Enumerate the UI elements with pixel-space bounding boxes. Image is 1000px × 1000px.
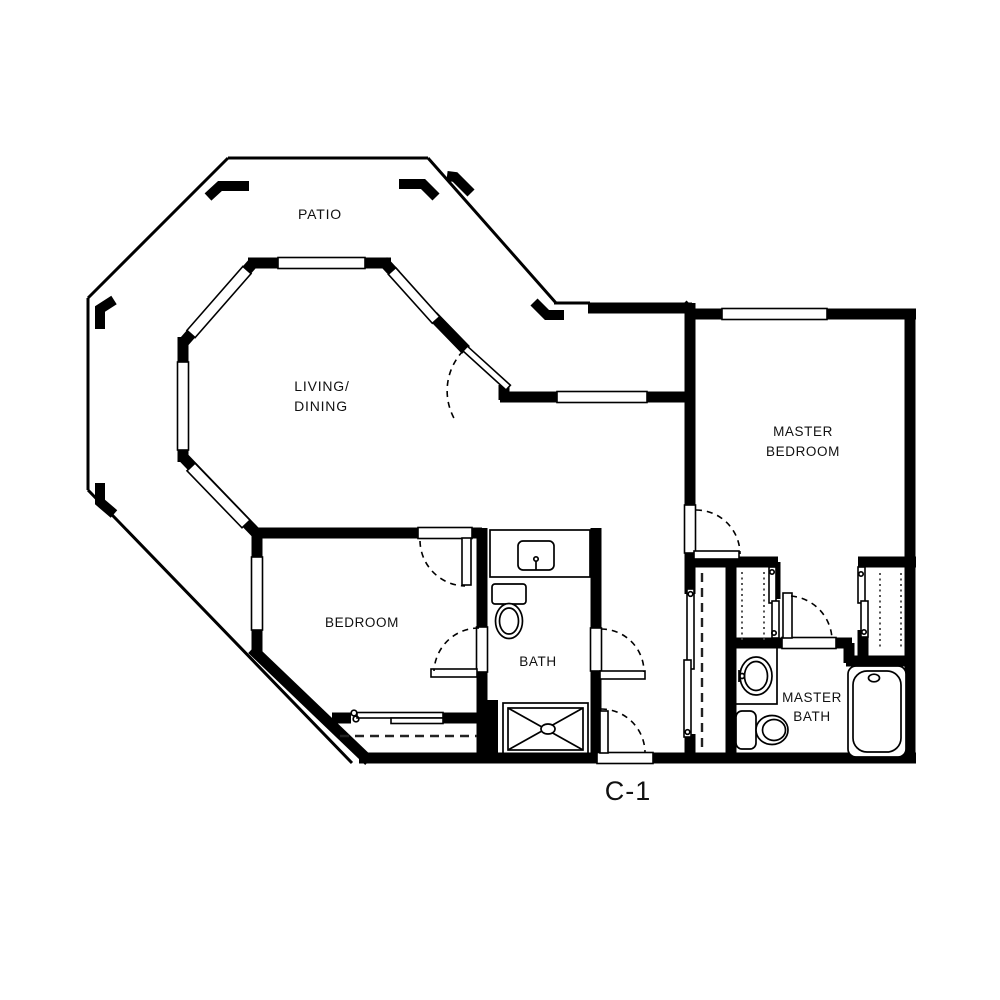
post-bracket <box>208 186 249 197</box>
shower-drain <box>541 724 555 734</box>
bedroom-label: BEDROOM <box>325 615 399 630</box>
bath-fixtures <box>490 530 590 755</box>
patio-door <box>447 346 510 420</box>
floor-plan-page: PATIO LIVING/ DINING MASTER BEDROOM BEDR… <box>0 0 1000 1000</box>
patio-corner-posts <box>100 176 564 514</box>
bedroom-bath-door <box>431 627 488 677</box>
window <box>278 258 365 269</box>
floor-plan-drawing: PATIO LIVING/ DINING MASTER BEDROOM BEDR… <box>0 0 1000 1000</box>
post-bracket <box>100 300 114 329</box>
bath-label: BATH <box>519 654 556 669</box>
unit-plan-title: C-1 <box>605 776 652 806</box>
master-bedroom-label-line1: MASTER <box>773 424 833 439</box>
window <box>557 392 647 403</box>
window <box>722 309 827 320</box>
entry-door <box>597 709 653 764</box>
window <box>252 557 263 630</box>
master-bedroom-door <box>685 505 741 559</box>
walls <box>183 261 916 763</box>
window <box>187 463 250 528</box>
door-handle <box>351 710 357 716</box>
master-closet-right <box>858 567 901 648</box>
master-bath-label-line1: MASTER <box>782 690 842 705</box>
patio-railing <box>88 158 590 763</box>
bath-hall-door <box>591 628 646 679</box>
living-dining-label-line2: DINING <box>294 398 348 414</box>
shower-stall <box>503 703 588 755</box>
post-bracket <box>100 483 114 514</box>
master-bath-toilet <box>736 711 788 749</box>
post-bracket <box>399 184 436 197</box>
window <box>178 362 189 450</box>
bath-vanity-sink <box>490 530 590 577</box>
master-bath-label-line2: BATH <box>793 709 830 724</box>
door-handle <box>353 716 359 722</box>
master-bath-vanity-sink <box>735 646 777 704</box>
patio-label: PATIO <box>298 206 342 222</box>
bathtub <box>848 666 906 757</box>
bedroom-door <box>418 528 472 587</box>
window <box>388 268 439 324</box>
living-dining-label-line1: LIVING/ <box>294 378 349 394</box>
master-bath-door <box>782 593 836 649</box>
hall-sliding-closet <box>684 573 702 748</box>
master-closet-left <box>742 567 779 640</box>
master-bedroom-label-line2: BEDROOM <box>766 444 840 459</box>
window <box>187 266 251 337</box>
bath-toilet <box>492 584 526 639</box>
